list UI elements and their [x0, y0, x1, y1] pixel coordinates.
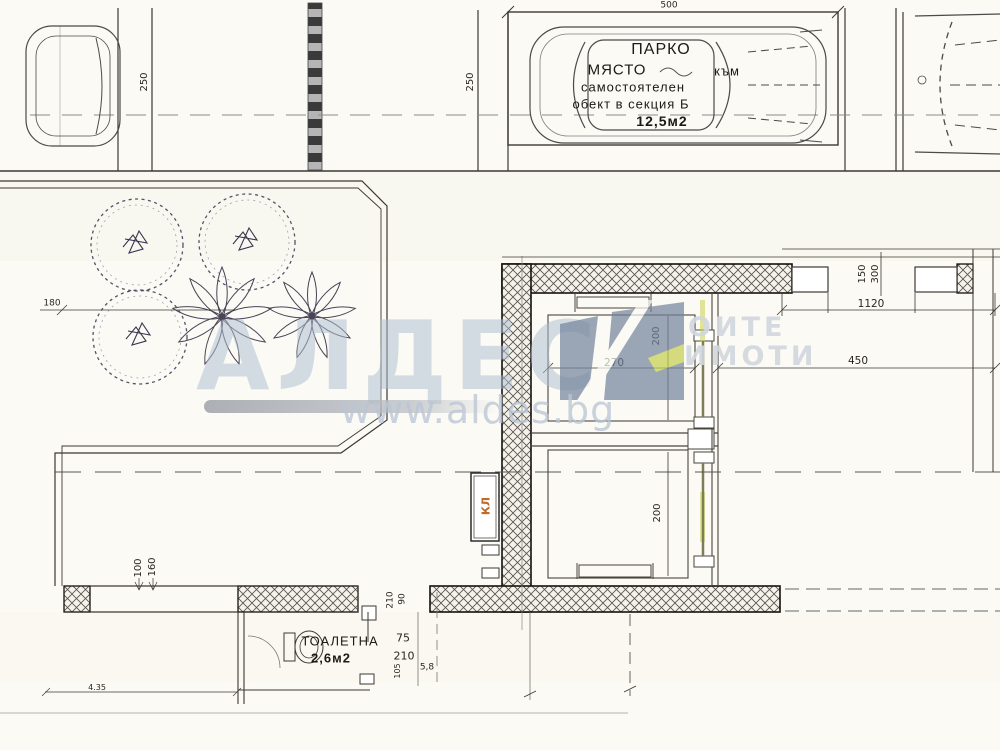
parking-line4: обект в секция Б: [573, 98, 690, 111]
shaft-walls: [64, 264, 973, 612]
trees: [91, 194, 356, 384]
toilet-name: ТОАЛЕТНА: [301, 635, 378, 648]
dim-210-toilet: 210: [394, 651, 415, 662]
dim-210-lobby: 210: [387, 591, 396, 608]
dim-160-walk: 160: [148, 557, 158, 576]
plan-linework: [0, 0, 1000, 750]
parking-line1: ПАРКО: [631, 42, 690, 58]
electrical-panel-label: КЛ: [481, 497, 492, 515]
dim-75-toilet: 75: [396, 633, 410, 644]
parking-line2: МЯСТО: [588, 63, 647, 78]
toilet-area: 2,6м2: [311, 652, 351, 665]
dim-250-mid: 250: [466, 72, 476, 91]
dim-250-left: 250: [140, 72, 150, 91]
level-4-35: 4.35: [88, 684, 106, 692]
dim-200-lower-room: 200: [653, 503, 663, 522]
parking-line3: самостоятелен: [581, 81, 685, 94]
dim-105-toilet: 105: [394, 663, 402, 678]
dim-500-stall-width: 500: [660, 2, 677, 11]
dim-450: 450: [848, 356, 868, 367]
dim-1120: 1120: [858, 299, 885, 310]
dim-100-walk: 100: [134, 558, 144, 577]
dim-150-pier: 150: [858, 264, 868, 283]
floor-plan-scan: ПАРКО МЯСТО към самостоятелен обект в се…: [0, 0, 1000, 750]
parking-line2b: към: [714, 65, 740, 78]
dim-90-lobby: 90: [399, 593, 408, 604]
dim-180-garden: 180: [43, 300, 60, 309]
dim-270-room-width: 270: [604, 358, 624, 369]
dim-300-pier: 300: [871, 264, 881, 283]
dim-5-8: 5,8: [420, 664, 434, 673]
parking-area: 12,5м2: [636, 114, 687, 128]
dim-200-upper-room: 200: [652, 326, 662, 345]
